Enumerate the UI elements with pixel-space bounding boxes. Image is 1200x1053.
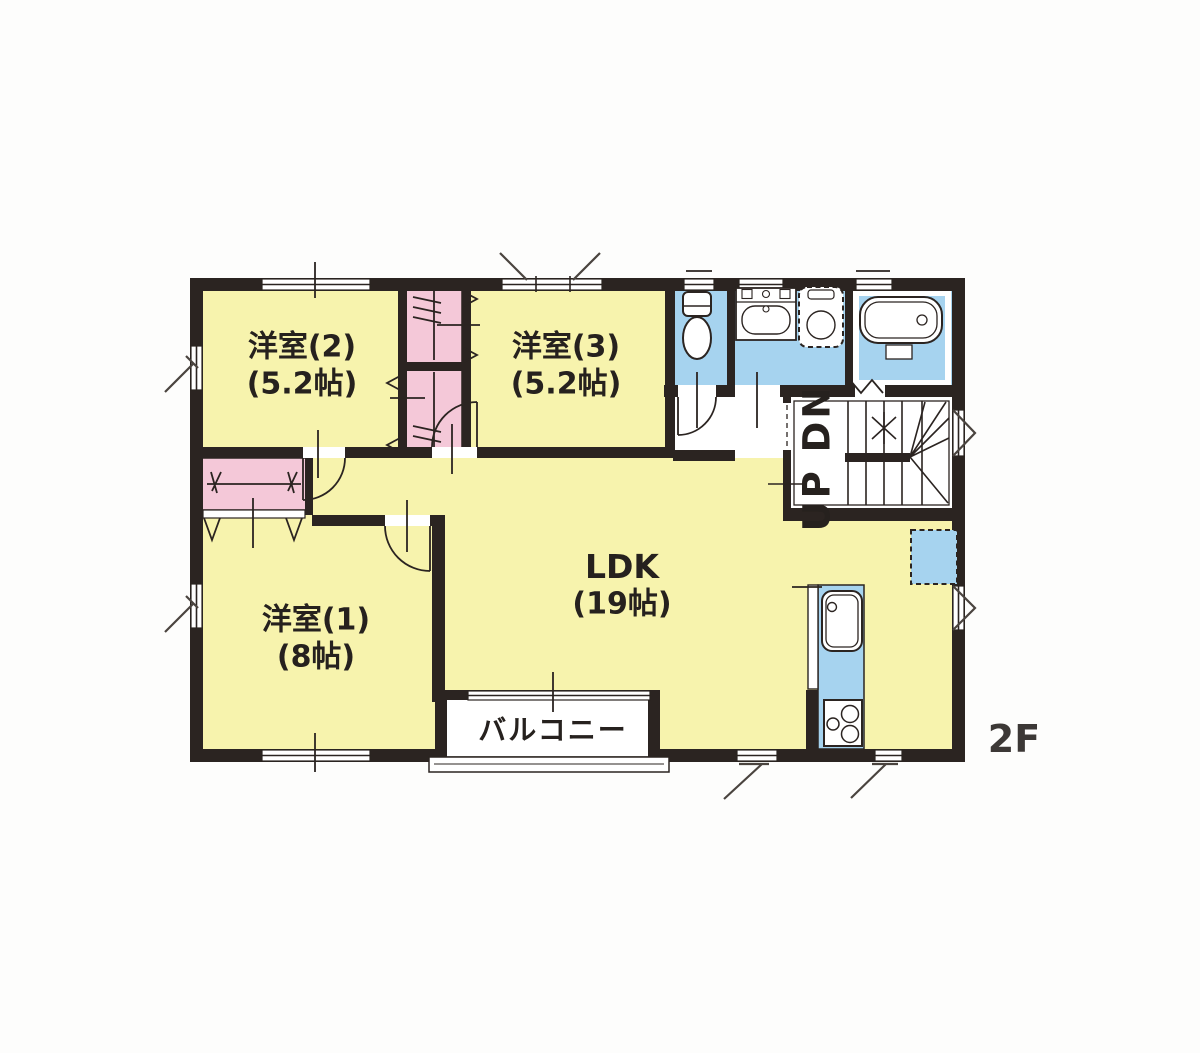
- wall-room1-top: [312, 515, 385, 526]
- floor-plan-page: 洋室(2) (5.2帖) 洋室(3) (5.2帖) 洋室(1) (8帖) LDK…: [0, 0, 1200, 1053]
- stove-icon: [824, 700, 862, 746]
- wall-outer-bottom-right: [648, 749, 965, 762]
- arrow-ldk-vent-2: [851, 764, 898, 798]
- hall-floor: [671, 393, 785, 458]
- toilet-icon: [683, 292, 711, 359]
- wall-wet-bottom: [885, 385, 952, 397]
- wall-stairs-left: [783, 450, 791, 510]
- wall-outer-right: [952, 278, 965, 762]
- room2-size-label: (5.2帖): [247, 368, 358, 401]
- floor-plan-drawing: [0, 0, 1200, 1053]
- stairs-mid-wall: [845, 453, 910, 462]
- room1-size-label: (8帖): [277, 641, 355, 674]
- ldk-name-label: LDK: [585, 549, 659, 585]
- refrigerator-space-icon: [911, 530, 957, 584]
- ldk-size-label: (19帖): [572, 588, 671, 621]
- wall-toilet-washroom: [727, 283, 735, 393]
- washing-machine-space-icon: [799, 287, 843, 347]
- wall-kitchen-stub: [806, 690, 818, 749]
- wall-room1-ldk: [432, 515, 445, 702]
- room3-name-label: 洋室(3): [512, 331, 620, 364]
- room2-name-label: 洋室(2): [248, 331, 356, 364]
- stairs-updn-label: UP DN: [798, 385, 839, 532]
- balcony-railing: [429, 757, 669, 772]
- kitchen-counter-edge: [808, 585, 818, 689]
- wall-balcony-right: [648, 692, 660, 757]
- door-opening-room3: [432, 447, 477, 458]
- room1-name-label: 洋室(1): [262, 604, 370, 637]
- wall-band: [345, 447, 432, 458]
- wall-closet1-right: [305, 458, 313, 515]
- wall-balcony-left: [435, 692, 447, 757]
- wall-washroom-bath: [845, 283, 853, 393]
- floor-label: 2F: [988, 719, 1040, 761]
- vanity-sink-icon: [736, 288, 796, 340]
- wall-hall-stub: [673, 450, 735, 461]
- arrow-ldk-vent-1: [724, 764, 769, 799]
- wall-band: [477, 447, 673, 458]
- room3-size-label: (5.2帖): [511, 368, 622, 401]
- wall-closet-divider: [398, 362, 471, 371]
- balcony-label: バルコニー: [478, 716, 627, 747]
- arrow-room3-top-window: [500, 253, 600, 280]
- wall-band: [196, 447, 303, 458]
- kitchen-sink-icon: [822, 591, 862, 651]
- closet-room1-door: [203, 510, 305, 518]
- wall-room3-right: [665, 283, 675, 458]
- door-opening-room2: [303, 447, 345, 458]
